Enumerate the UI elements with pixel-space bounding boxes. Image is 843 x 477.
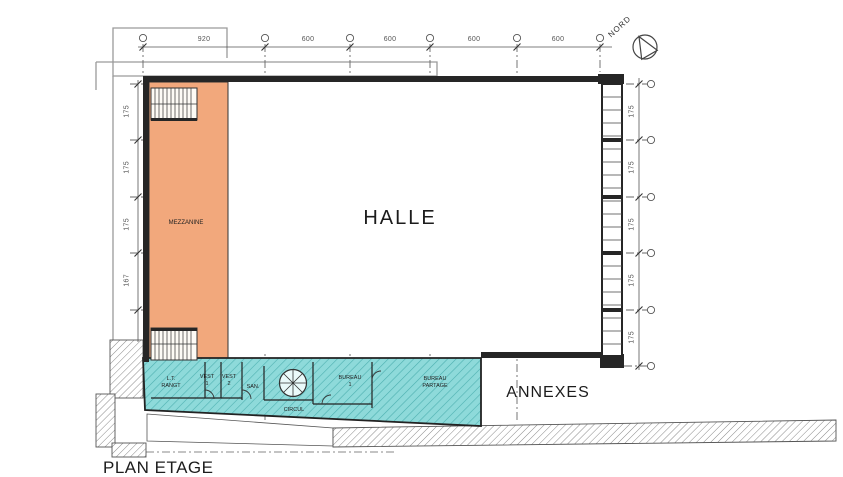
dim-label-right-3: 175 — [629, 260, 638, 300]
plan-title: PLAN ETAGE — [103, 457, 303, 477]
dim-label-left-1: 175 — [124, 147, 133, 187]
dim-label-left-3: 167 — [124, 260, 133, 300]
room-label-bureau-partage: BUREAU PARTAGE — [405, 376, 465, 390]
dim-label-top-0: 920 — [184, 36, 224, 45]
stairs-bottom-icon — [151, 328, 197, 360]
room-label-halle: HALLE — [350, 206, 450, 231]
dim-label-left-0: 175 — [124, 91, 133, 131]
ramp-area — [147, 414, 333, 446]
room-label-annexes: ANNEXES — [498, 383, 598, 403]
room-label-bureau-1: BUREAU 1 — [325, 375, 375, 389]
dim-label-left-2: 175 — [124, 204, 133, 244]
stairs-top-icon — [151, 88, 197, 121]
dim-label-top-4: 600 — [538, 36, 578, 45]
room-label-san: SAN. — [238, 384, 268, 391]
dim-label-right-2: 175 — [629, 204, 638, 244]
dim-label-right-1: 175 — [629, 147, 638, 187]
floor-plan-page: HALLE MEZZANINE ANNEXES L.T. RANGT VEST … — [0, 0, 843, 477]
dim-label-top-3: 600 — [454, 36, 494, 45]
dim-label-right-0: 175 — [629, 91, 638, 131]
dim-label-top-1: 600 — [288, 36, 328, 45]
room-label-lt-rangt: L.T. RANGT — [146, 376, 196, 390]
annexes-area — [143, 358, 481, 426]
louvered-wall — [601, 84, 623, 356]
room-label-circul: CIRCUL — [269, 407, 319, 414]
north-arrow-icon — [631, 32, 657, 59]
dim-label-right-4: 175 — [629, 317, 638, 357]
site-wall-strip — [333, 420, 836, 447]
dim-label-top-2: 600 — [370, 36, 410, 45]
spiral-staircase-icon — [280, 370, 307, 397]
room-label-mezzanine: MEZZANINE — [146, 220, 226, 228]
